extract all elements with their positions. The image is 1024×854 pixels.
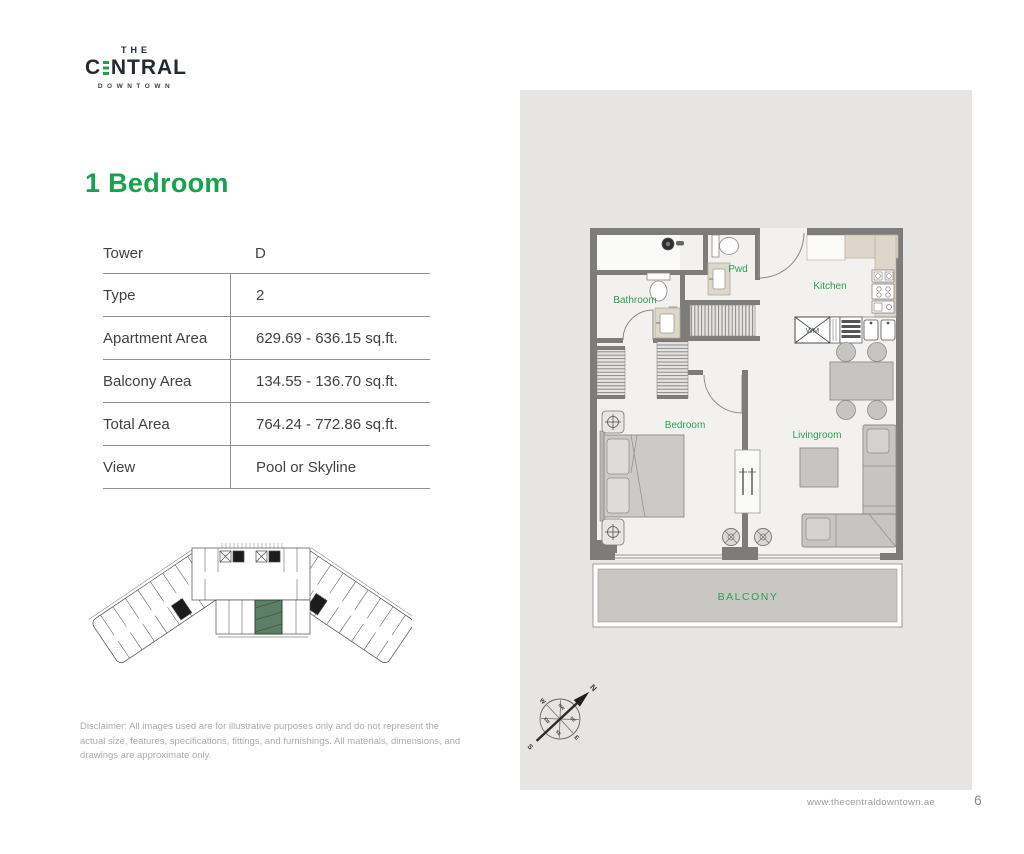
logo-wordmark: CNTRAL <box>85 57 187 79</box>
row-label: Balcony Area <box>103 373 230 390</box>
logo-the: THE <box>85 45 187 55</box>
unit-floorplan: BALCONY <box>585 225 910 635</box>
row-label: View <box>103 459 230 476</box>
row-label: Type <box>103 287 230 304</box>
compass-w: W <box>538 698 546 706</box>
row-value: 764.24 - 772.86 sq.ft. <box>230 403 430 445</box>
bedroom-label: Bedroom <box>665 420 706 431</box>
logo-e-bars-icon <box>103 61 110 75</box>
table-row: View Pool or Skyline <box>103 446 430 489</box>
page-number: 6 <box>974 792 982 808</box>
pwd-label: Pwd <box>728 264 747 275</box>
table-row: Total Area 764.24 - 772.86 sq.ft. <box>103 403 430 446</box>
table-row: Tower D <box>103 233 430 274</box>
row-label: Total Area <box>103 416 230 433</box>
spec-table: Tower D Type 2 Apartment Area 629.69 - 6… <box>103 233 430 489</box>
building-keyplan <box>88 542 412 678</box>
compass-nw: NW <box>557 702 565 711</box>
page-title: 1 Bedroom <box>85 168 229 199</box>
keyplan-center <box>192 543 310 637</box>
compass-n: N <box>588 683 599 694</box>
the-central-logo: THE CNTRAL DOWNTOWN <box>85 45 187 90</box>
row-value: 134.55 - 136.70 sq.ft. <box>230 360 430 402</box>
footer-website: www.thecentraldowntown.ae <box>807 797 935 808</box>
wm-label: WM <box>806 326 819 335</box>
keyplan-highlighted-unit <box>255 600 282 634</box>
logo-ntral: NTRAL <box>111 57 187 79</box>
sliding-door <box>735 450 760 513</box>
row-label: Tower <box>103 245 230 262</box>
bathroom-label: Bathroom <box>613 295 656 306</box>
livingroom-label: Livingroom <box>793 430 842 441</box>
row-value: 629.69 - 636.15 sq.ft. <box>230 317 430 359</box>
balcony-label: BALCONY <box>718 591 779 603</box>
kitchen-label: Kitchen <box>813 281 846 292</box>
compass-e: E <box>572 735 579 742</box>
logo-c: C <box>85 57 101 79</box>
row-value: 2 <box>230 274 430 316</box>
balcony: BALCONY <box>593 564 902 627</box>
row-label: Apartment Area <box>103 330 230 347</box>
row-value: D <box>230 233 430 273</box>
coffee-table <box>800 448 838 487</box>
brochure-page: THE CNTRAL DOWNTOWN 1 Bedroom Tower D Ty… <box>0 0 1024 854</box>
table-row: Apartment Area 629.69 - 636.15 sq.ft. <box>103 317 430 360</box>
compass-s: S <box>525 743 534 751</box>
compass-se: SE <box>555 729 563 737</box>
compass-rose: N S W E NW NE SW SE <box>522 663 612 768</box>
logo-downtown: DOWNTOWN <box>85 83 187 90</box>
row-value: Pool or Skyline <box>230 446 430 488</box>
compass-ne: NE <box>569 715 577 723</box>
disclaimer-text: Disclaimer: All images used are for illu… <box>80 720 462 764</box>
table-row: Type 2 <box>103 274 430 317</box>
dining-table <box>830 362 893 400</box>
compass-sw: SW <box>543 716 551 724</box>
table-row: Balcony Area 134.55 - 136.70 sq.ft. <box>103 360 430 403</box>
